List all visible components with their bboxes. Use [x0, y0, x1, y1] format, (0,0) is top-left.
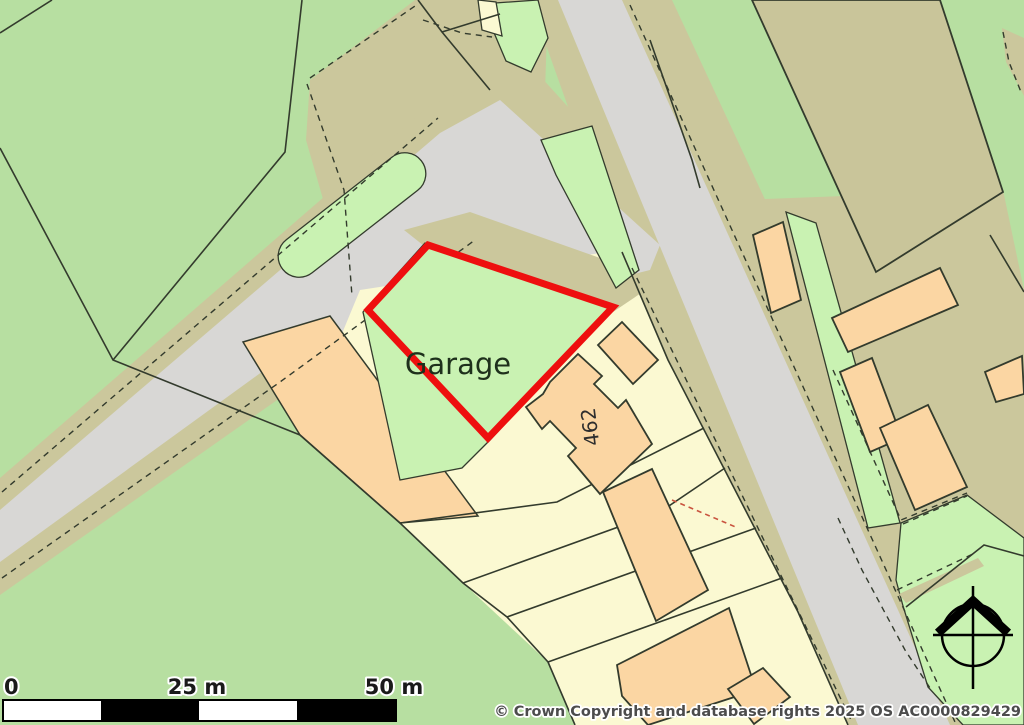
- scale-tick-50: 50 m: [365, 675, 423, 699]
- scale-bar-segment: [101, 700, 199, 721]
- house-number-label: 462: [576, 406, 604, 447]
- map-viewport[interactable]: Garage 462 0 25 m 50 m © Crown Copyright…: [0, 0, 1024, 725]
- garage-label: Garage: [405, 347, 511, 381]
- map-canvas: Garage 462 0 25 m 50 m © Crown Copyright…: [0, 0, 1024, 725]
- scale-bar-segment: [297, 700, 396, 721]
- scale-tick-25: 25 m: [168, 675, 226, 699]
- scale-tick-0: 0: [4, 675, 19, 699]
- attribution-text: © Crown Copyright and database rights 20…: [494, 704, 1021, 720]
